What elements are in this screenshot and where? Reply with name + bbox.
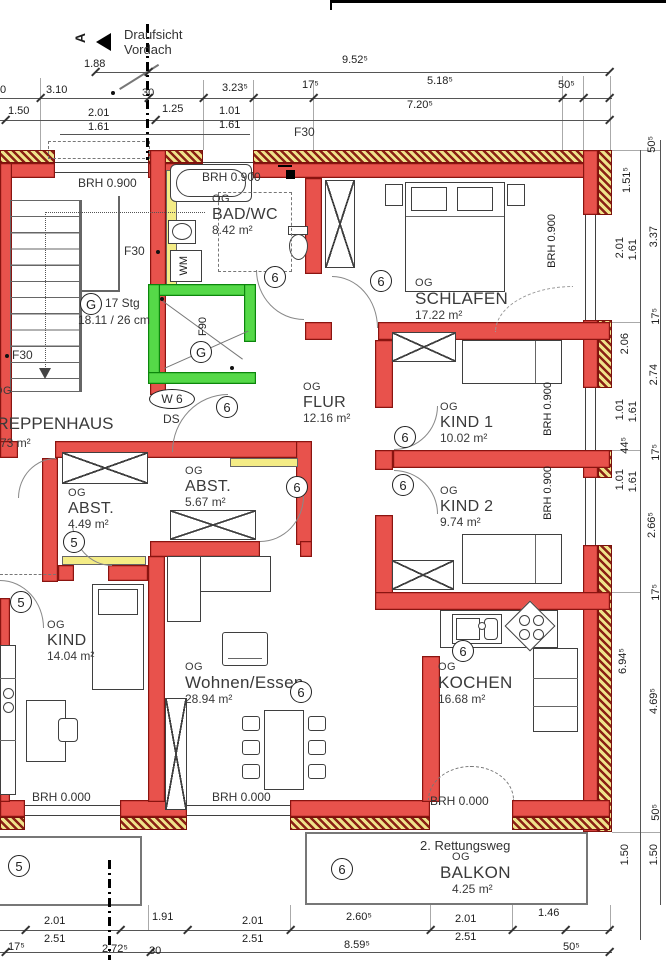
room-og: OG xyxy=(303,382,350,394)
wall-segment xyxy=(300,541,312,557)
armchair-cushion xyxy=(228,658,262,659)
unit-circle: 6 xyxy=(394,426,416,448)
wall-segment xyxy=(375,515,393,594)
door-swing xyxy=(18,458,56,498)
room-label-kind5: OG KIND 14.04 m² xyxy=(47,620,94,663)
window xyxy=(585,478,596,545)
sofa-chaise xyxy=(167,556,201,622)
room-name: BAD/WC xyxy=(212,206,278,223)
room-label-abst6: OG ABST. 5.67 m² xyxy=(185,466,231,509)
dim-label: 50⁵ xyxy=(563,941,580,953)
room-label-schlafen: OG SCHLAFEN 17.22 m² xyxy=(415,278,508,322)
leader xyxy=(40,78,41,150)
leader xyxy=(253,80,254,150)
wall-insulation xyxy=(598,150,612,215)
brh-label: BRH 0.900 xyxy=(78,176,137,190)
room-name: FLUR xyxy=(303,394,350,411)
leader xyxy=(610,76,611,150)
section-arrow-icon xyxy=(96,33,111,51)
dim-label: 5.18⁵ xyxy=(427,75,453,87)
wardrobe xyxy=(392,332,456,362)
wall-segment xyxy=(375,450,393,470)
burner xyxy=(533,629,544,640)
dim-label: 3.37 xyxy=(648,226,660,247)
top-border-line xyxy=(330,0,666,3)
dim-label: 2.01 xyxy=(455,913,476,925)
room-og: OG xyxy=(68,488,114,500)
dim-label: 2.72⁵ xyxy=(102,943,128,955)
room-area: 9.74 m² xyxy=(440,516,493,529)
room-area: 5.67 m² xyxy=(185,496,231,509)
dim-label: 3.10 xyxy=(46,84,67,96)
dim-label: 30 xyxy=(142,87,154,99)
f30-dot xyxy=(5,354,9,358)
ds-label: DS xyxy=(163,412,180,426)
unit-circle: 5 xyxy=(63,531,85,553)
dim-label: 1.61 xyxy=(219,119,240,131)
blanket-line xyxy=(406,216,504,217)
chair xyxy=(308,740,326,755)
wall-insulation xyxy=(120,817,187,830)
dim-label: 2.01 xyxy=(44,915,65,927)
wardrobe xyxy=(325,180,355,268)
dim-label: 4.69⁵ xyxy=(648,688,660,714)
dim-label: 1.61 xyxy=(88,121,109,133)
brh-label: BRH 0.900 xyxy=(542,382,554,436)
dim-label: 1.01 xyxy=(614,399,626,420)
dim-label: 2.06 xyxy=(619,333,631,354)
pillow-line xyxy=(535,341,536,383)
chair xyxy=(308,716,326,731)
dim-label: 3.23⁵ xyxy=(222,82,248,94)
dim-line xyxy=(0,98,612,99)
dim-label: 2.01 xyxy=(242,915,263,927)
dim-label: 1.61 xyxy=(627,401,639,422)
dim-label: 1.01 xyxy=(219,105,240,117)
dim-label: 50⁵ xyxy=(558,79,575,91)
dim-label: 1.61 xyxy=(627,239,639,260)
dim-label: 2.51 xyxy=(44,933,65,945)
room-label-kochen: OG KOCHEN 16.68 m² xyxy=(438,662,513,706)
unit-circle: 6 xyxy=(392,474,414,496)
lift-shaft-wall xyxy=(148,284,160,384)
lift-shaft-wall xyxy=(244,284,256,342)
dim-line xyxy=(0,952,612,953)
f30-dot xyxy=(156,250,160,254)
wall-type-w6: W 6 xyxy=(149,389,195,409)
brh-label: BRH 0.000 xyxy=(430,794,489,808)
wall-segment xyxy=(393,450,610,468)
counter-divider xyxy=(533,706,578,707)
room-label-kind2: OG KIND 2 9.74 m² xyxy=(440,486,493,529)
dim-label: 2.51 xyxy=(455,931,476,943)
dim-line xyxy=(95,72,610,73)
wall-insulation xyxy=(290,817,430,830)
lift-shaft-wall xyxy=(148,284,256,296)
dim-label: 1.50 xyxy=(648,844,660,865)
room-label-badwc: OG BAD/WC 8.42 m² xyxy=(212,194,278,237)
dim-label: 44⁵ xyxy=(619,437,631,454)
brh-label: BRH 0.000 xyxy=(32,790,91,804)
sink-basin xyxy=(484,618,498,640)
dim-label: 1.50 xyxy=(619,844,631,865)
room-og: OG xyxy=(440,486,493,498)
stair-landing-line xyxy=(118,196,120,292)
pillow xyxy=(98,589,138,615)
dim-label: 30 xyxy=(149,945,161,957)
stair-direction-arrow xyxy=(39,368,51,379)
shower-hose-icon xyxy=(278,165,292,167)
room-og: OG xyxy=(47,620,94,632)
lift-dot xyxy=(230,366,234,370)
chair xyxy=(242,716,260,731)
dim-label: 1.88 xyxy=(84,58,105,70)
wall-segment xyxy=(512,800,610,817)
stair-count: 17 Stg xyxy=(105,296,140,310)
room-name: SCHLAFEN xyxy=(415,290,508,308)
room-og: OG xyxy=(212,194,278,206)
room-name: KIND 1 xyxy=(440,414,493,431)
pillow xyxy=(411,187,447,211)
dim-label: 2.01 xyxy=(614,237,626,258)
leader xyxy=(612,832,660,833)
wall-insulation xyxy=(512,817,610,830)
dining-table xyxy=(264,710,304,790)
desk-chair xyxy=(58,718,78,742)
bed-single xyxy=(462,534,562,584)
room-label-kind1: OG KIND 1 10.02 m² xyxy=(440,402,493,445)
room-area: 10.02 m² xyxy=(440,432,493,445)
wall-segment xyxy=(583,545,598,832)
dim-label: 1.91 xyxy=(152,911,173,923)
brh-label: BRH 0.000 xyxy=(212,790,271,804)
sink-basin xyxy=(456,618,480,640)
unit-circle: 6 xyxy=(370,270,392,292)
wall-segment xyxy=(108,565,148,581)
wall-insulation xyxy=(253,150,610,163)
room-label-treppenhaus: OG xyxy=(0,386,12,398)
sink-basin xyxy=(172,223,192,240)
opening-dashed xyxy=(0,574,56,575)
wall-segment xyxy=(58,565,74,581)
dim-label: 2.60⁵ xyxy=(346,911,372,923)
leader xyxy=(148,905,149,931)
window xyxy=(187,805,290,816)
dim-line xyxy=(640,150,641,940)
room-name: KOCHEN xyxy=(438,674,513,692)
burner xyxy=(533,615,544,626)
leader xyxy=(612,592,640,593)
counter-divider xyxy=(0,678,16,679)
room-area: 8.42 m² xyxy=(212,224,278,237)
room-og: OG xyxy=(0,386,12,398)
dim-label: 17⁵ xyxy=(650,308,662,325)
wall-segment xyxy=(290,800,430,817)
wall-segment xyxy=(150,541,260,557)
room-name: KIND 2 xyxy=(440,498,493,515)
room-label-flur: OG FLUR 12.16 m² xyxy=(303,382,350,425)
stair-ratio: 18.11 / 26 cm xyxy=(78,313,150,327)
wall-segment xyxy=(305,322,332,340)
vordach-label-line1: Draufsicht xyxy=(124,27,183,42)
room-area-treppenhaus: 3.73 m² xyxy=(0,436,31,450)
unit-circle: 6 xyxy=(216,396,238,418)
dim-label: 9.52⁵ xyxy=(342,54,368,66)
unit-circle: 6 xyxy=(452,640,474,662)
unit-circle: 6 xyxy=(331,858,353,880)
dim-line xyxy=(0,930,612,931)
neighbor-kitchen-unit xyxy=(0,645,16,795)
wall-segment xyxy=(583,150,598,215)
window xyxy=(585,388,596,450)
stair-walkline xyxy=(45,212,205,213)
lift-circle-g: G xyxy=(190,341,212,363)
stair-rail xyxy=(80,200,82,392)
chair xyxy=(242,764,260,779)
sink-circle xyxy=(3,688,14,699)
counter-divider xyxy=(0,740,16,741)
burner xyxy=(519,629,530,640)
dim-label: 17⁵ xyxy=(650,584,662,601)
dim-label: 1.25 xyxy=(162,103,183,115)
dim-line xyxy=(660,140,661,905)
brh-label: BRH 0.900 xyxy=(202,170,261,184)
dim-label: 0 xyxy=(0,84,6,96)
unit-circle: 5 xyxy=(8,855,30,877)
dim-label: 1.51⁵ xyxy=(621,167,633,193)
storage-shelf xyxy=(170,510,256,540)
room-name-treppenhaus: TREPPENHAUS xyxy=(0,414,114,434)
pillow xyxy=(457,187,493,211)
dim-label: 6.94⁵ xyxy=(617,648,629,674)
vordach-label-line2: Vordach xyxy=(124,42,172,57)
room-area: 4.25 m² xyxy=(452,883,511,896)
unit-circle: 5 xyxy=(10,591,32,613)
room-area: 28.94 m² xyxy=(185,693,304,706)
nightstand xyxy=(385,184,403,206)
window xyxy=(55,162,148,173)
brh-label: BRH 0.900 xyxy=(542,466,554,520)
dim-label: 8.59⁵ xyxy=(344,939,370,951)
window xyxy=(25,805,120,816)
bed-single xyxy=(462,340,562,384)
wall-insulation xyxy=(598,545,612,832)
wm-label: WM xyxy=(178,256,190,276)
stair-walkline xyxy=(45,214,46,369)
wall-segment xyxy=(0,800,25,817)
room-label-balkon: OG BALKON 4.25 m² xyxy=(440,852,511,896)
pillow-line xyxy=(535,535,536,583)
room-name: Wohnen/Essen xyxy=(185,674,304,692)
dim-label: 17⁵ xyxy=(8,941,25,953)
room-name: BALKON xyxy=(440,864,511,882)
wardrobe xyxy=(392,560,454,590)
room-area: 14.04 m² xyxy=(47,650,94,663)
f30-label: F30 xyxy=(12,348,33,362)
room-area: 16.68 m² xyxy=(438,693,513,706)
burner xyxy=(519,615,530,626)
leader xyxy=(612,322,640,323)
lift-dot xyxy=(160,297,164,301)
window xyxy=(585,215,596,320)
dim-label: 2.51 xyxy=(242,933,263,945)
chair xyxy=(242,740,260,755)
room-name: KIND xyxy=(47,632,94,649)
room-og: OG xyxy=(440,402,493,414)
room-area: 17.22 m² xyxy=(415,309,508,322)
dim-line xyxy=(60,134,250,135)
dim-label: 2.01 xyxy=(88,107,109,119)
unit-circle: 6 xyxy=(286,476,308,498)
leader xyxy=(583,76,584,150)
dim-label: 1.61 xyxy=(627,471,639,492)
room-area: 12.16 m² xyxy=(303,412,350,425)
section-letter: A xyxy=(72,33,88,43)
room-area: 4.49 m² xyxy=(68,518,114,531)
wall-insulation xyxy=(0,817,25,830)
leader xyxy=(203,80,204,150)
room-name: ABST. xyxy=(185,478,231,495)
dim-label: 50⁵ xyxy=(646,136,658,153)
room-og: OG xyxy=(185,466,231,478)
leader-dot xyxy=(111,91,115,95)
lift-shaft-wall xyxy=(148,372,256,384)
room-label-wohnen: OG Wohnen/Essen 28.94 m² xyxy=(185,662,304,706)
top-border-tick xyxy=(330,0,332,10)
f90-label: F90 xyxy=(197,317,209,336)
room-label-abst5: OG ABST. 4.49 m² xyxy=(68,488,114,531)
vordach-outline xyxy=(48,141,150,159)
wall-segment xyxy=(253,163,610,178)
counter-divider xyxy=(533,678,578,679)
rettungsweg-label: 2. Rettungsweg xyxy=(420,838,510,853)
shaft-panel xyxy=(230,458,298,467)
dim-label: 17⁵ xyxy=(650,444,662,461)
tall-cabinet xyxy=(165,698,187,810)
chair xyxy=(308,764,326,779)
wall-segment xyxy=(375,592,610,610)
dim-label: 1.01 xyxy=(614,469,626,490)
dim-label: 50⁵ xyxy=(650,804,662,821)
unit-circle: 6 xyxy=(264,266,286,288)
wall-segment xyxy=(375,340,393,408)
floor-plan: A Draufsicht Vordach xyxy=(0,0,666,960)
kitchen-counter-side xyxy=(533,648,578,732)
nightstand xyxy=(507,184,525,206)
dim-label: 2.66⁵ xyxy=(646,512,658,538)
brh-label: BRH 0.900 xyxy=(546,214,558,268)
dim-label: 1.50 xyxy=(8,105,29,117)
shower-fitting-icon xyxy=(286,170,295,179)
f30-label: F30 xyxy=(124,244,145,258)
unit-circle: 6 xyxy=(290,681,312,703)
sink-circle xyxy=(3,702,14,713)
dim-label: 1.46 xyxy=(538,907,559,919)
armchair xyxy=(222,632,268,666)
stair-circle-g: G xyxy=(80,293,102,315)
f30-label: F30 xyxy=(294,125,315,139)
wall-insulation xyxy=(0,150,55,163)
dim-label: 2.74 xyxy=(648,364,660,385)
stair-landing-line xyxy=(80,290,120,292)
faucet xyxy=(478,622,486,630)
dim-label: 7.20⁵ xyxy=(407,99,433,111)
dim-label: 17⁵ xyxy=(302,79,319,91)
wall-segment xyxy=(148,556,165,802)
room-name: ABST. xyxy=(68,500,114,517)
storage-shelf xyxy=(62,452,148,484)
